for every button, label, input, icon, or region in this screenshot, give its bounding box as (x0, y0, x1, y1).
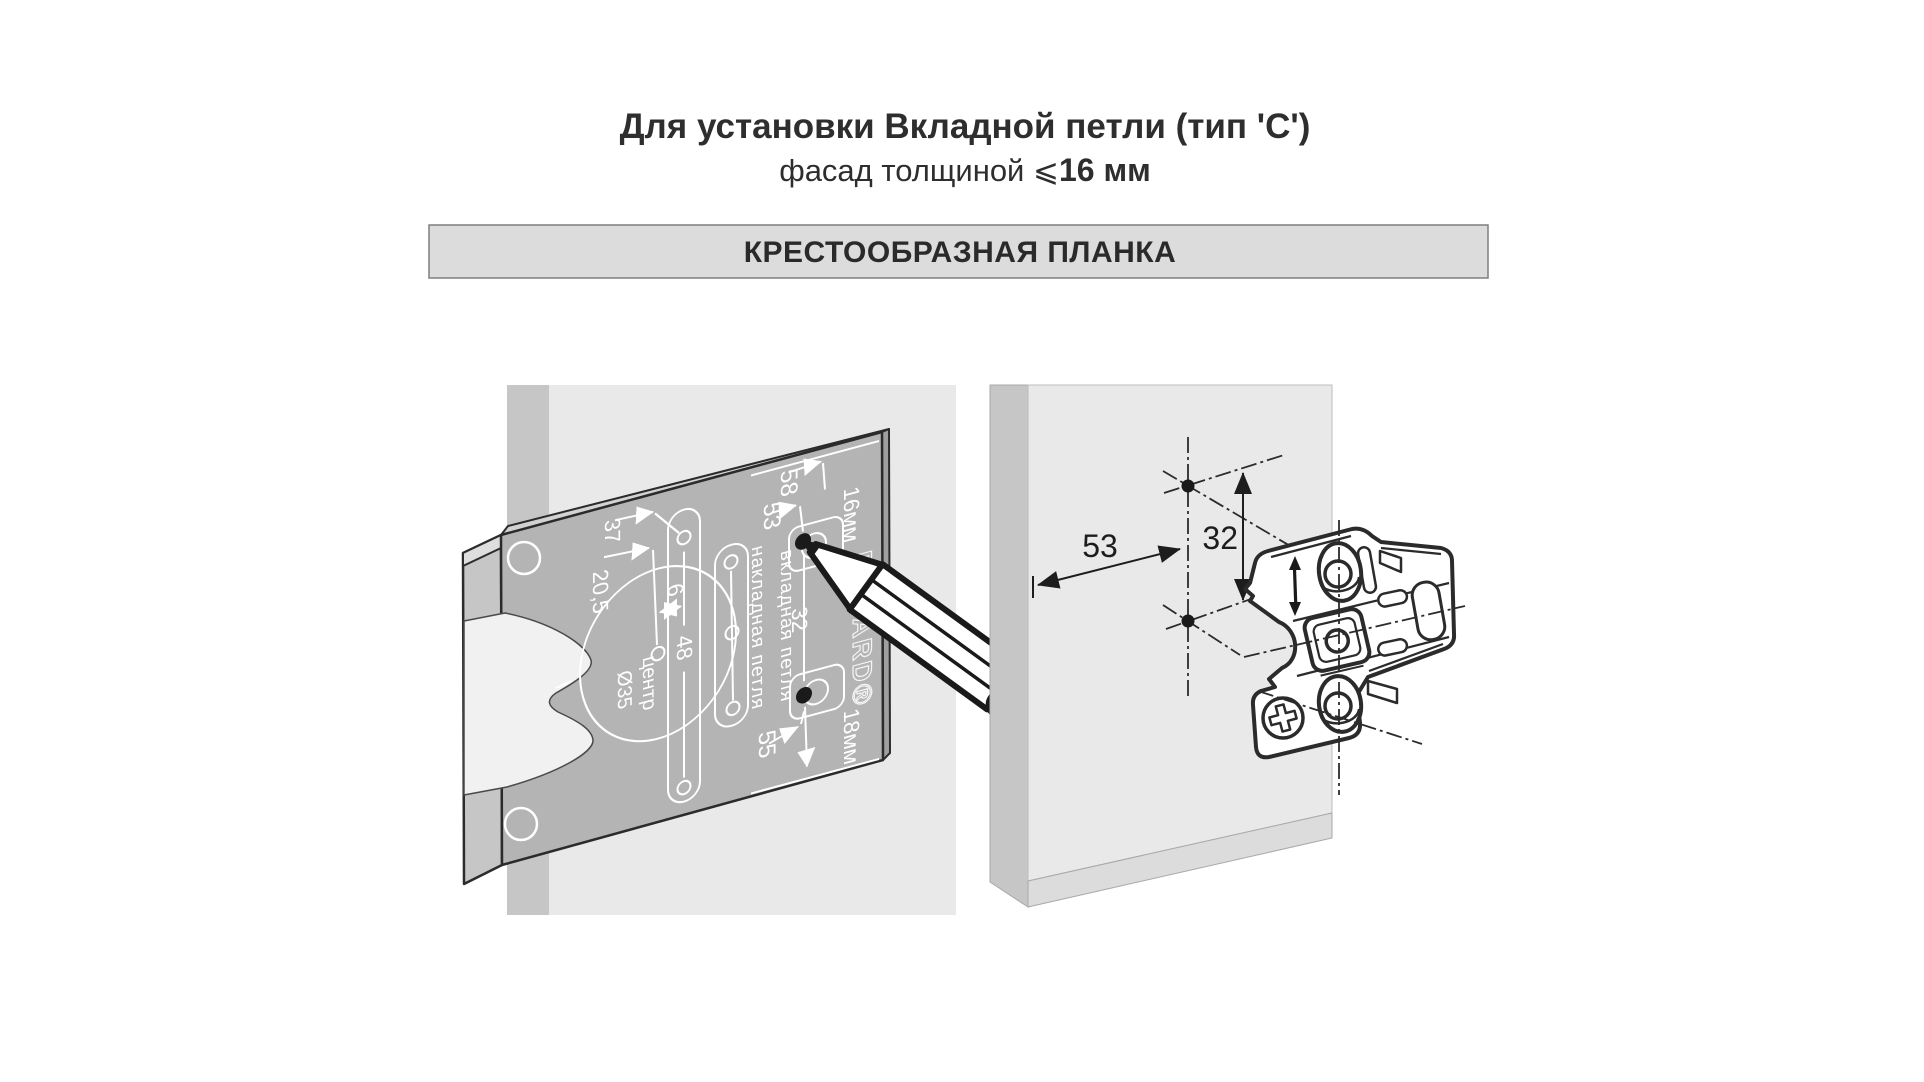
drill-point-top (1182, 480, 1195, 493)
door-18mm-label: 18мм (839, 706, 864, 767)
overlay-hinge-label: накладная петля (747, 543, 769, 713)
subtitle-thickness: 16 мм (1059, 152, 1151, 188)
right-illustration: 53 32 (990, 385, 1465, 907)
page-subtitle: фасад толщиной ⩽16 мм (779, 152, 1151, 188)
cup-center-label-2: Ø35 (613, 668, 635, 712)
door-16mm-label: 16мм (839, 484, 864, 545)
plate-flag-bottom (1368, 681, 1397, 703)
plate-screw-hole-middle (1303, 607, 1373, 677)
facade-panel-right (1028, 385, 1332, 881)
dim-20-5-label: 20,5 (588, 567, 613, 616)
dim-32-value: 32 (1202, 520, 1238, 556)
page-title: Для установки Вкладной петли (тип 'С') (620, 107, 1311, 146)
dim-53-value: 53 (1082, 528, 1118, 564)
cup-center-label-1: центр (638, 653, 660, 713)
drill-point-bottom (1182, 615, 1195, 628)
cabinet-side-edge-right (990, 385, 1028, 907)
instruction-sheet: Для установки Вкладной петли (тип 'С') ф… (0, 0, 1924, 1082)
section-header-label: КРЕСТООБРАЗНАЯ ПЛАНКА (744, 236, 1177, 269)
subtitle-prefix: фасад толщиной ⩽ (779, 153, 1059, 188)
inset-hinge-label: вкладная петля (776, 547, 798, 705)
left-illustration: 53 58 55 37 20,5 6 48 32 центр Ø35 накла… (463, 385, 1039, 915)
diagram-canvas: Для установки Вкладной петли (тип 'С') ф… (0, 0, 1924, 1082)
